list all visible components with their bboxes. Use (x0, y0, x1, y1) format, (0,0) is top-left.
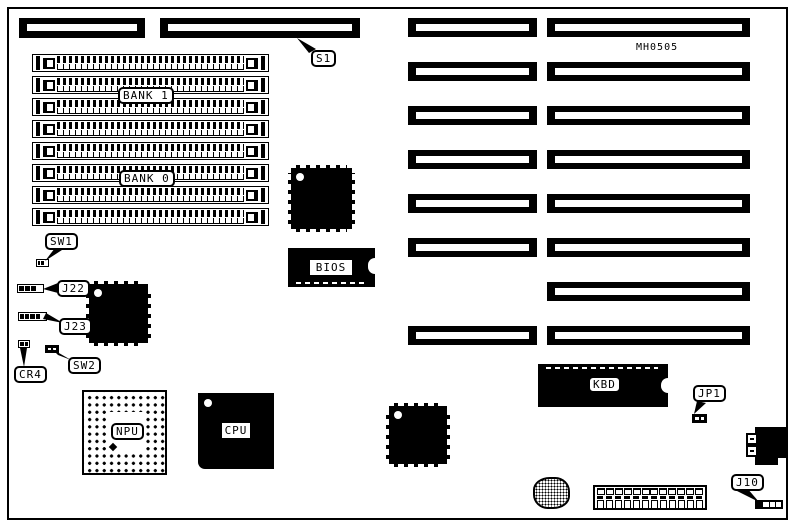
callout-cr4: CR4 (14, 366, 47, 383)
j22-header (17, 284, 44, 293)
cpu-pin1-dot (204, 399, 212, 407)
expansion-slot (547, 194, 750, 213)
expansion-slot (547, 238, 750, 257)
chipset-ic-3 (386, 403, 450, 467)
expansion-slot (547, 106, 750, 125)
expansion-slot (547, 18, 750, 37)
kbd-chip: KBD (538, 364, 668, 407)
kbd-pin-row (546, 367, 658, 369)
socket-clip-right (247, 166, 267, 180)
socket-clip-left (34, 144, 54, 158)
chipset-ic-1 (86, 281, 151, 346)
chipset-ic-2 (288, 165, 355, 232)
expansion-slot (547, 326, 750, 345)
socket-pins (57, 188, 244, 202)
crystal-oscillator (533, 477, 570, 509)
j23-header (18, 312, 47, 321)
expansion-slot (547, 282, 750, 301)
npu-socket: NPU (82, 390, 167, 475)
callout-s1: S1 (311, 50, 336, 67)
socket-pins (57, 56, 244, 70)
bios-notch (368, 258, 375, 274)
socket-clip-left (34, 78, 54, 92)
callout-sw2: SW2 (68, 357, 101, 374)
socket-clip-right (247, 122, 267, 136)
keyboard-din-connector (755, 427, 786, 465)
motherboard-diagram: BANK 1 BANK 0 MH0505 S1 SW1 J22 J23 CR4 … (0, 0, 791, 527)
chipset-ic-3-pin1-dot (394, 411, 402, 419)
socket-clip-left (34, 100, 54, 114)
socket-clip-left (34, 166, 54, 180)
bank1-label: BANK 1 (118, 87, 174, 104)
bank0-label: BANK 0 (119, 170, 175, 187)
socket-clip-right (247, 188, 267, 202)
socket-pins (57, 144, 244, 158)
memory-socket (32, 54, 269, 72)
expansion-slot (408, 62, 537, 81)
expansion-slot (408, 106, 537, 125)
bios-label: BIOS (310, 260, 352, 275)
expansion-slot (408, 18, 537, 37)
top-connector-left (19, 18, 145, 38)
din-pin-bottom (746, 445, 758, 457)
callout-j10: J10 (731, 474, 764, 491)
kbd-label: KBD (588, 376, 621, 393)
expansion-slot (408, 150, 537, 169)
expansion-slot (547, 150, 750, 169)
expansion-slot (408, 194, 537, 213)
memory-socket (32, 186, 269, 204)
sw2-switch (45, 345, 59, 353)
board-id-label: MH0505 (636, 42, 678, 53)
power-connector (593, 485, 707, 510)
cpu-chip: CPU (198, 393, 274, 469)
memory-socket (32, 142, 269, 160)
memory-socket (32, 120, 269, 138)
jp1-jumper (692, 414, 707, 423)
npu-label: NPU (111, 423, 144, 440)
callout-jp1: JP1 (693, 385, 726, 402)
socket-clip-right (247, 144, 267, 158)
expansion-slot (408, 326, 537, 345)
callout-sw1: SW1 (45, 233, 78, 250)
din-pin-top (746, 433, 758, 445)
expansion-slot (408, 238, 537, 257)
socket-clip-left (34, 210, 54, 224)
socket-clip-right (247, 56, 267, 70)
callout-j23: J23 (59, 318, 92, 335)
bios-chip: BIOS (288, 248, 375, 287)
chipset-ic-1-pin1-dot (94, 289, 102, 297)
socket-clip-right (247, 100, 267, 114)
power-connector-pins (595, 500, 705, 510)
socket-clip-left (34, 122, 54, 136)
expansion-slot-column-left (408, 18, 537, 363)
power-connector-tabs (595, 487, 705, 495)
expansion-slot (547, 62, 750, 81)
socket-pins (57, 210, 244, 224)
socket-clip-left (34, 56, 54, 70)
memory-socket (32, 208, 269, 226)
socket-clip-right (247, 210, 267, 224)
callout-j22: J22 (57, 280, 90, 297)
chipset-ic-2-pin1-dot (296, 173, 304, 181)
expansion-slot-column-right (547, 18, 750, 363)
socket-clip-right (247, 78, 267, 92)
cpu-label: CPU (222, 423, 250, 438)
memory-socket-rows (32, 54, 269, 226)
npu-socket-center: NPU (108, 412, 146, 453)
socket-clip-left (34, 188, 54, 202)
bios-pin-row (296, 282, 365, 284)
socket-pins (57, 122, 244, 136)
power-connector-key (597, 496, 703, 499)
cr4-diode (18, 340, 30, 348)
sw1-switch (36, 259, 49, 267)
kbd-notch (661, 378, 668, 393)
j10-header (755, 500, 783, 509)
top-connector-s1 (160, 18, 360, 38)
